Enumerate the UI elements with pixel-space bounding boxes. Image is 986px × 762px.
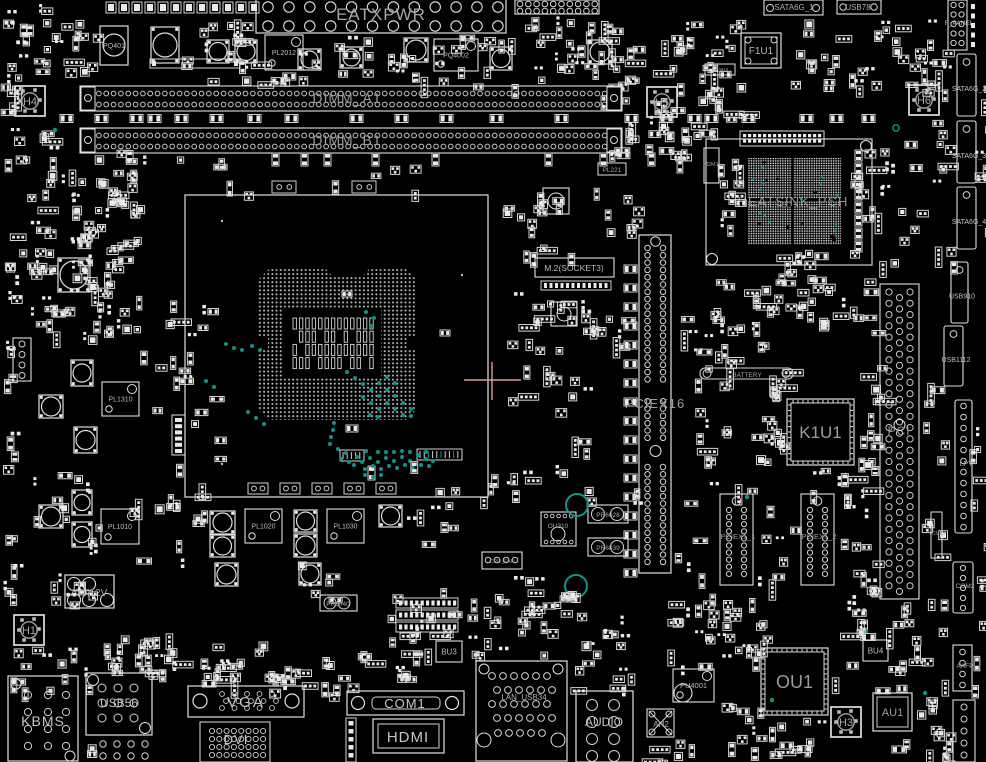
svg-text:SATA6G_2: SATA6G_2: [952, 86, 986, 93]
svg-text:PCIEX1_1: PCIEX1_1: [720, 532, 755, 541]
svg-text:DIMM_A1: DIMM_A1: [312, 90, 381, 106]
svg-text:PR6028: PR6028: [596, 512, 620, 519]
svg-text:DIMM_B1: DIMM_B1: [312, 132, 381, 148]
svg-text:H5: H5: [655, 97, 669, 109]
svg-text:OU1: OU1: [776, 672, 813, 692]
svg-text:EATXPWR: EATXPWR: [336, 5, 426, 24]
svg-text:AU1: AU1: [882, 707, 903, 719]
svg-text:H1: H1: [22, 625, 36, 637]
svg-text:HEATSINK_PCH: HEATSINK_PCH: [738, 194, 849, 209]
svg-text:PL2012: PL2012: [272, 50, 296, 57]
svg-text:HDMI: HDMI: [387, 729, 429, 746]
svg-text:LPT: LPT: [960, 461, 974, 468]
svg-text:COM1: COM1: [384, 696, 426, 711]
svg-text:CPU_FAN: CPU_FAN: [489, 559, 514, 565]
svg-text:PCI: PCI: [887, 424, 910, 438]
svg-text:SATA6G_1: SATA6G_1: [774, 3, 814, 12]
svg-text:PL1310: PL1310: [108, 396, 132, 403]
svg-text:PL1010: PL1010: [108, 524, 132, 531]
svg-text:M.2(SOCKET3): M.2(SOCKET3): [544, 263, 604, 273]
svg-text:AH2: AH2: [653, 720, 669, 729]
svg-text:PR6039: PR6039: [596, 545, 620, 552]
svg-text:COM2: COM2: [956, 583, 975, 590]
svg-text:PU4001: PU4001: [680, 681, 707, 690]
svg-text:PCIEX1_2: PCIEX1_2: [801, 532, 836, 541]
svg-text:K1U1: K1U1: [799, 423, 842, 442]
svg-text:USB56: USB56: [100, 696, 138, 710]
svg-text:H4: H4: [23, 96, 37, 108]
svg-text:KBMS: KBMS: [21, 713, 65, 729]
svg-text:BATTERY: BATTERY: [732, 372, 762, 379]
svg-text:PL1030: PL1030: [333, 524, 357, 531]
svg-text:H3: H3: [839, 717, 853, 729]
svg-text:USB1112: USB1112: [942, 357, 971, 364]
svg-text:PQ401: PQ401: [103, 43, 125, 50]
svg-text:DVI: DVI: [224, 732, 249, 747]
svg-text:USB78: USB78: [845, 3, 871, 12]
svg-text:M2M1: M2M1: [703, 162, 718, 168]
svg-text:1CM18: 1CM18: [929, 531, 945, 537]
svg-text:AUDIO: AUDIO: [585, 715, 623, 729]
svg-text:VGA: VGA: [227, 694, 265, 711]
svg-text:H6: H6: [917, 95, 931, 107]
svg-text:SATA6G_4: SATA6G_4: [952, 219, 986, 226]
svg-text:PL221: PL221: [603, 167, 622, 174]
svg-text:PL1020: PL1020: [251, 524, 275, 531]
svg-text:USB910: USB910: [949, 294, 975, 301]
svg-text:SATA6G_3: SATA6G_3: [952, 153, 986, 160]
svg-text:BU4: BU4: [868, 646, 884, 655]
svg-text:F1U1: F1U1: [749, 46, 774, 57]
svg-text:AAFP: AAFP: [957, 663, 974, 670]
svg-text:OU310: OU310: [548, 523, 569, 530]
svg-text:BU3: BU3: [441, 647, 457, 656]
svg-text:LAN_USB34: LAN_USB34: [501, 693, 547, 702]
svg-text:PR6040: PR6040: [326, 601, 350, 608]
svg-text:F_PANEL: F_PANEL: [945, 20, 974, 27]
